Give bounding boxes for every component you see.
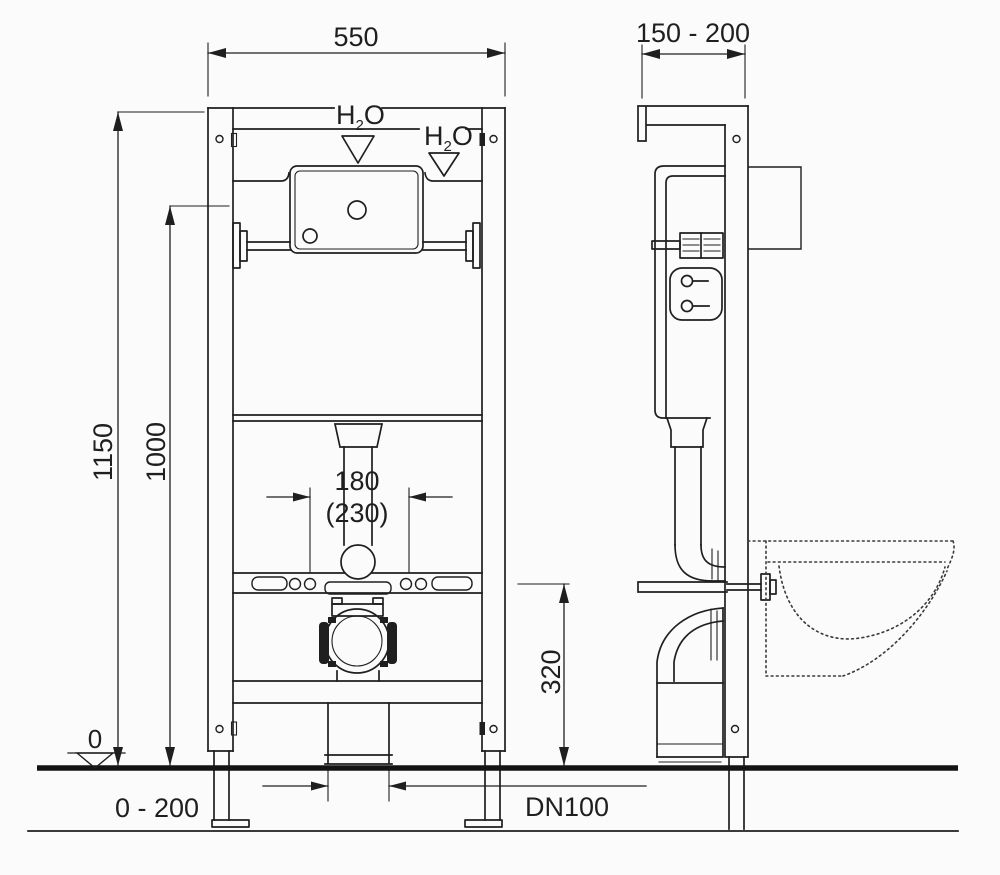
dim-flush-spacing-label: 180 bbox=[334, 466, 379, 496]
dim-overall-height-label: 1150 bbox=[88, 423, 118, 481]
drain-clamp-left bbox=[319, 622, 329, 664]
drain-pipe-front bbox=[325, 703, 392, 764]
water-triangle-icon bbox=[342, 136, 374, 163]
dim-frame-width-label: 550 bbox=[333, 22, 378, 52]
right-foot bbox=[465, 820, 502, 827]
frame-rail-side bbox=[725, 106, 748, 829]
wall-bracket-side bbox=[638, 106, 748, 141]
dim-wall-distance: 150 - 200 bbox=[636, 18, 750, 98]
dim-drain-size-label: DN100 bbox=[525, 792, 609, 822]
floor-datum-symbol: 0 bbox=[68, 724, 125, 768]
dim-frame-width: 550 bbox=[208, 22, 505, 96]
water-supply-label-2: H2O bbox=[424, 121, 473, 176]
flush-valve-side bbox=[670, 268, 722, 320]
dim-drain-height-label: 320 bbox=[536, 649, 566, 694]
fixing-bolt-side bbox=[727, 574, 776, 600]
cistern-hole-left bbox=[303, 229, 317, 243]
cistern-side bbox=[652, 166, 725, 545]
floor-datum-label: 0 bbox=[88, 724, 102, 754]
mounting-plate-slots bbox=[252, 577, 472, 594]
technical-drawing-sheet: 550 150 - 200 1150 1000 180 (230) 320 0 bbox=[0, 0, 1000, 875]
dim-cistern-height-label: 1000 bbox=[141, 422, 171, 482]
flush-outlet bbox=[341, 545, 375, 579]
dim-cistern-height: 1000 bbox=[141, 206, 229, 766]
water-label-text: H2O bbox=[424, 121, 473, 155]
dim-flush-spacing-alt-label: (230) bbox=[325, 498, 388, 528]
drain-elbow-front bbox=[319, 598, 397, 681]
dim-drain-size: DN100 bbox=[263, 771, 646, 822]
wc-frame-installation-drawing: 550 150 - 200 1150 1000 180 (230) 320 0 bbox=[0, 0, 1000, 875]
drain-clamp-right bbox=[387, 622, 397, 664]
actuator-box-side bbox=[748, 167, 801, 249]
toilet-bowl-outline bbox=[748, 541, 954, 676]
water-supply-label-1: H2O bbox=[336, 100, 385, 163]
left-foot bbox=[212, 820, 249, 827]
water-triangle-icon bbox=[429, 153, 459, 176]
side-view bbox=[638, 106, 954, 829]
dim-drain-height: 320 bbox=[518, 584, 569, 766]
flush-bend-side bbox=[638, 545, 727, 592]
dim-floor-range-label: 0 - 200 bbox=[115, 793, 199, 823]
water-label-text: H2O bbox=[336, 100, 385, 134]
cistern-hole-center bbox=[348, 201, 366, 219]
dim-wall-distance-label: 150 - 200 bbox=[636, 18, 750, 48]
drain-elbow-side bbox=[657, 608, 723, 762]
